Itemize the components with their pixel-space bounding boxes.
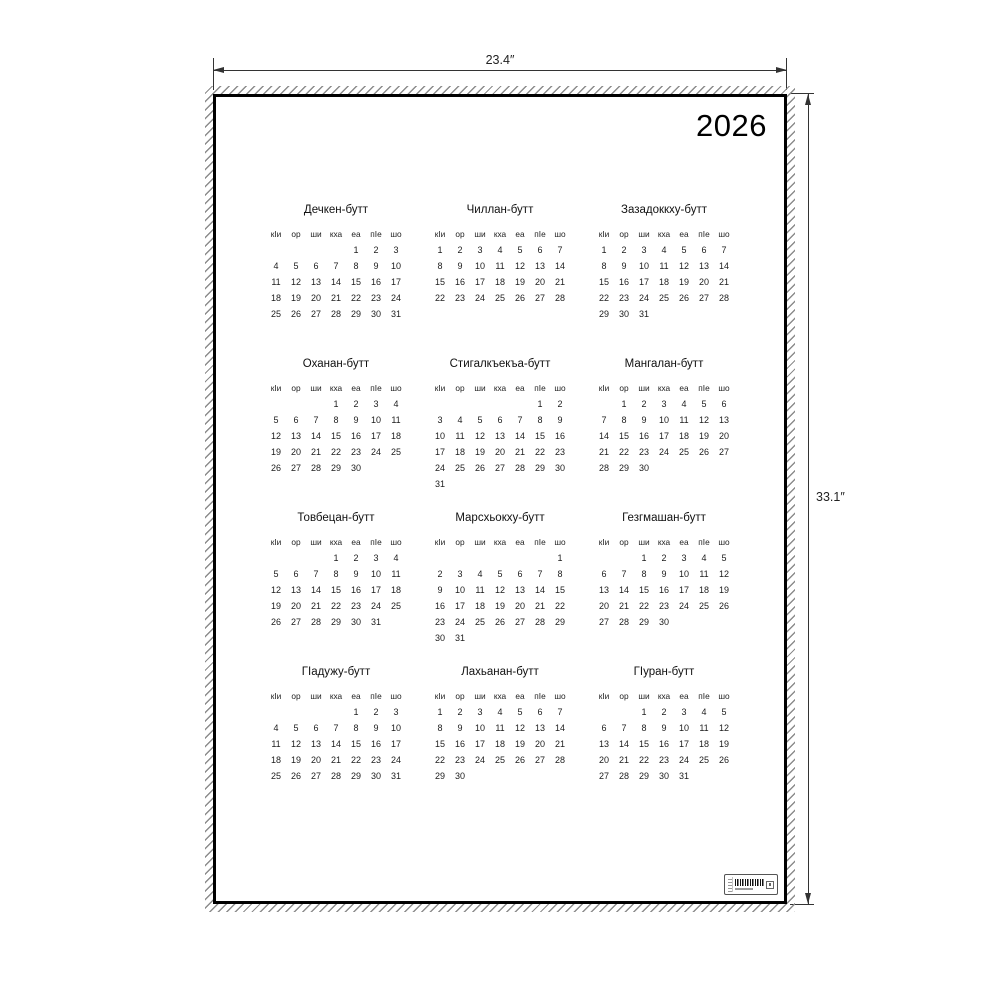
day-cell: 29 — [351, 771, 361, 781]
month-block: Зазадоккху-бутт кIиоршикхаеапIешо1234567… — [594, 203, 734, 357]
day-cell: 9 — [373, 261, 378, 271]
day-cell: 23 — [371, 293, 381, 303]
barcode-microtext — [735, 888, 753, 890]
day-cell: 23 — [659, 755, 669, 765]
day-cell: 30 — [555, 463, 565, 473]
weekday-header: еа — [515, 229, 524, 239]
day-cell: 16 — [351, 585, 361, 595]
day-cell: 21 — [555, 277, 565, 287]
month-title: Оханан-бутт — [266, 357, 406, 371]
weekday-header: еа — [351, 537, 360, 547]
height-dimension-line — [808, 94, 809, 904]
day-cell: 19 — [271, 601, 281, 611]
weekday-header: пIе — [698, 537, 709, 547]
weekday-header: ор — [455, 383, 464, 393]
day-cell: 9 — [457, 261, 462, 271]
day-cell: 23 — [351, 447, 361, 457]
day-cell: 9 — [353, 569, 358, 579]
day-cell: 19 — [515, 739, 525, 749]
day-cell: 16 — [455, 739, 465, 749]
day-cell: 4 — [273, 723, 278, 733]
day-cell: 12 — [515, 261, 525, 271]
day-cell: 9 — [457, 723, 462, 733]
weekday-header: шо — [390, 383, 401, 393]
day-cell: 22 — [535, 447, 545, 457]
day-cell: 29 — [619, 463, 629, 473]
day-cell: 11 — [455, 431, 464, 441]
day-cell: 9 — [661, 569, 666, 579]
weekday-header: ор — [619, 383, 628, 393]
day-cell: 17 — [391, 277, 401, 287]
day-cell: 28 — [599, 463, 609, 473]
day-cell: 9 — [621, 261, 626, 271]
weekday-header: ши — [638, 691, 649, 701]
weekday-header: ши — [474, 229, 485, 239]
month-grid: кIиоршикхаеапIешо12345678910111213141516… — [266, 226, 406, 322]
day-cell: 5 — [293, 723, 298, 733]
day-cell: 5 — [517, 707, 522, 717]
day-cell: 5 — [721, 707, 726, 717]
day-cell: 30 — [455, 771, 465, 781]
day-cell: 27 — [599, 771, 609, 781]
day-cell: 4 — [681, 399, 686, 409]
day-cell: 16 — [371, 277, 381, 287]
day-cell: 18 — [699, 739, 709, 749]
day-cell: 20 — [699, 277, 709, 287]
day-cell: 14 — [331, 739, 341, 749]
day-cell: 21 — [331, 755, 341, 765]
month-title: Стигалкъекъа-бутт — [430, 357, 570, 371]
barcode-icon — [735, 879, 764, 886]
day-cell: 7 — [601, 415, 606, 425]
day-cell: 6 — [517, 569, 522, 579]
day-cell: 4 — [457, 415, 462, 425]
day-cell: 11 — [699, 723, 708, 733]
weekday-header: кха — [330, 229, 342, 239]
day-cell: 26 — [679, 293, 689, 303]
month-block: ГIадужу-бутт кIиоршикхаеапIешо1234567891… — [266, 665, 406, 819]
weekday-header: кIи — [435, 383, 446, 393]
weekday-header: пIе — [534, 229, 545, 239]
day-cell: 18 — [495, 739, 505, 749]
day-cell: 21 — [619, 601, 629, 611]
weekday-header: ор — [619, 537, 628, 547]
day-cell: 26 — [515, 293, 525, 303]
day-cell: 25 — [391, 601, 401, 611]
day-cell: 13 — [291, 431, 301, 441]
weekday-header: еа — [351, 229, 360, 239]
day-cell: 4 — [393, 399, 398, 409]
weekday-header: кIи — [435, 537, 446, 547]
weekday-header: кха — [494, 537, 506, 547]
day-cell: 27 — [311, 309, 321, 319]
day-cell: 29 — [331, 617, 341, 627]
weekday-header: шо — [554, 229, 565, 239]
day-cell: 6 — [701, 245, 706, 255]
day-cell: 12 — [719, 723, 729, 733]
weekday-header: пIе — [370, 229, 381, 239]
day-cell: 10 — [679, 569, 689, 579]
day-cell: 17 — [475, 277, 485, 287]
month-block: Дечкен-бутт кIиоршикхаеапIешо12345678910… — [266, 203, 406, 357]
day-cell: 24 — [455, 617, 465, 627]
day-cell: 22 — [555, 601, 565, 611]
weekday-header: кха — [330, 383, 342, 393]
day-cell: 30 — [435, 633, 445, 643]
barcode-side-microtext — [728, 877, 733, 892]
weekday-header: ор — [291, 383, 300, 393]
day-cell: 25 — [679, 447, 689, 457]
day-cell: 8 — [537, 415, 542, 425]
weekday-header: кIи — [599, 537, 610, 547]
day-cell: 6 — [601, 569, 606, 579]
day-cell: 23 — [351, 601, 361, 611]
day-cell: 31 — [679, 771, 689, 781]
weekday-header: кIи — [599, 229, 610, 239]
day-cell: 27 — [291, 463, 301, 473]
day-cell: 26 — [475, 463, 485, 473]
weekday-header: ор — [291, 691, 300, 701]
weekday-header: пIе — [370, 383, 381, 393]
day-cell: 18 — [455, 447, 465, 457]
day-cell: 15 — [435, 739, 445, 749]
day-cell: 16 — [455, 277, 465, 287]
day-cell: 7 — [333, 261, 338, 271]
day-cell: 7 — [333, 723, 338, 733]
day-cell: 3 — [373, 553, 378, 563]
day-cell: 18 — [271, 293, 281, 303]
month-title: Мангалан-бутт — [594, 357, 734, 371]
day-cell: 20 — [719, 431, 729, 441]
height-dimension-label: 33.1″ — [816, 490, 845, 504]
day-cell: 30 — [371, 771, 381, 781]
day-cell: 9 — [641, 415, 646, 425]
day-cell: 11 — [699, 569, 708, 579]
day-cell: 29 — [639, 771, 649, 781]
weekday-header: кIи — [435, 229, 446, 239]
day-cell: 23 — [555, 447, 565, 457]
day-cell: 16 — [659, 585, 669, 595]
day-cell: 9 — [373, 723, 378, 733]
weekday-header: кха — [330, 691, 342, 701]
day-cell: 4 — [497, 245, 502, 255]
day-cell: 11 — [391, 569, 400, 579]
day-cell: 19 — [719, 585, 729, 595]
day-cell: 3 — [393, 707, 398, 717]
day-cell: 15 — [639, 585, 649, 595]
day-cell: 25 — [495, 755, 505, 765]
day-cell: 23 — [435, 617, 445, 627]
day-cell: 3 — [641, 245, 646, 255]
day-cell: 17 — [391, 739, 401, 749]
day-cell: 15 — [619, 431, 629, 441]
day-cell: 28 — [619, 771, 629, 781]
day-cell: 28 — [331, 771, 341, 781]
day-cell: 30 — [351, 463, 361, 473]
day-cell: 26 — [515, 755, 525, 765]
day-cell: 26 — [719, 601, 729, 611]
weekday-header: кха — [330, 537, 342, 547]
weekday-header: кха — [494, 691, 506, 701]
day-cell: 8 — [333, 569, 338, 579]
day-cell: 10 — [475, 723, 485, 733]
day-cell: 1 — [557, 553, 562, 563]
weekday-header: еа — [679, 229, 688, 239]
day-cell: 28 — [555, 293, 565, 303]
day-cell: 21 — [719, 277, 729, 287]
weekday-header: еа — [679, 383, 688, 393]
weekday-header: шо — [390, 537, 401, 547]
day-cell: 31 — [455, 633, 465, 643]
weekday-header: ши — [638, 383, 649, 393]
day-cell: 9 — [557, 415, 562, 425]
day-cell: 28 — [719, 293, 729, 303]
day-cell: 18 — [679, 431, 689, 441]
day-cell: 21 — [619, 755, 629, 765]
day-cell: 24 — [391, 755, 401, 765]
day-cell: 5 — [273, 569, 278, 579]
day-cell: 7 — [517, 415, 522, 425]
day-cell: 23 — [455, 755, 465, 765]
month-title: Дечкен-бутт — [266, 203, 406, 217]
mockup-canvas: 23.4″ 33.1″ 2026 Дечкен-бутт кIиоршикхае… — [0, 0, 1000, 1000]
day-cell: 27 — [291, 617, 301, 627]
day-cell: 7 — [621, 569, 626, 579]
weekday-header: еа — [515, 691, 524, 701]
weekday-header: шо — [554, 383, 565, 393]
day-cell: 7 — [621, 723, 626, 733]
weekday-header: ор — [455, 691, 464, 701]
day-cell: 1 — [621, 399, 626, 409]
day-cell: 5 — [497, 569, 502, 579]
day-cell: 15 — [639, 739, 649, 749]
day-cell: 30 — [619, 309, 629, 319]
day-cell: 3 — [477, 245, 482, 255]
day-cell: 9 — [437, 585, 442, 595]
day-cell: 19 — [291, 755, 301, 765]
day-cell: 29 — [535, 463, 545, 473]
day-cell: 5 — [273, 415, 278, 425]
weekday-header: ши — [310, 229, 321, 239]
day-cell: 10 — [455, 585, 465, 595]
poster-frame: 2026 Дечкен-бутт кIиоршикхаеапIешо123456… — [213, 94, 787, 904]
weekday-header: ши — [474, 537, 485, 547]
day-cell: 6 — [601, 723, 606, 733]
day-cell: 29 — [555, 617, 565, 627]
day-cell: 7 — [313, 569, 318, 579]
width-dimension-label: 23.4″ — [460, 53, 540, 67]
day-cell: 22 — [619, 447, 629, 457]
day-cell: 10 — [391, 261, 401, 271]
day-cell: 24 — [679, 601, 689, 611]
weekday-header: шо — [718, 383, 729, 393]
day-cell: 20 — [311, 293, 321, 303]
day-cell: 26 — [291, 309, 301, 319]
weekday-header: кха — [658, 229, 670, 239]
day-cell: 12 — [515, 723, 525, 733]
month-grid: кIиоршикхаеапIешо12345678910111213141516… — [266, 534, 406, 630]
weekday-header: шо — [390, 229, 401, 239]
day-cell: 2 — [437, 569, 442, 579]
day-cell: 24 — [371, 447, 381, 457]
day-cell: 19 — [271, 447, 281, 457]
day-cell: 11 — [495, 261, 504, 271]
weekday-header: пIе — [698, 229, 709, 239]
day-cell: 10 — [435, 431, 445, 441]
day-cell: 25 — [699, 755, 709, 765]
day-cell: 14 — [619, 585, 629, 595]
day-cell: 6 — [721, 399, 726, 409]
weekday-header: еа — [515, 383, 524, 393]
barcode-corner-box — [766, 881, 774, 889]
day-cell: 18 — [391, 431, 401, 441]
weekday-header: кIи — [271, 229, 282, 239]
day-cell: 4 — [661, 245, 666, 255]
weekday-header: ши — [474, 691, 485, 701]
weekday-header: кха — [658, 537, 670, 547]
day-cell: 14 — [555, 723, 565, 733]
day-cell: 2 — [353, 399, 358, 409]
day-cell: 15 — [535, 431, 545, 441]
day-cell: 31 — [639, 309, 649, 319]
day-cell: 7 — [313, 415, 318, 425]
day-cell: 17 — [639, 277, 649, 287]
day-cell: 2 — [353, 553, 358, 563]
day-cell: 28 — [535, 617, 545, 627]
day-cell: 29 — [639, 617, 649, 627]
day-cell: 17 — [679, 585, 689, 595]
day-cell: 14 — [619, 739, 629, 749]
day-cell: 8 — [641, 723, 646, 733]
day-cell: 23 — [659, 601, 669, 611]
day-cell: 28 — [331, 309, 341, 319]
barcode-corner-mark — [769, 883, 771, 886]
day-cell: 6 — [537, 245, 542, 255]
day-cell: 9 — [661, 723, 666, 733]
day-cell: 15 — [599, 277, 609, 287]
day-cell: 1 — [437, 245, 442, 255]
day-cell: 8 — [353, 723, 358, 733]
weekday-header: ши — [638, 229, 649, 239]
day-cell: 2 — [373, 245, 378, 255]
day-cell: 25 — [659, 293, 669, 303]
day-cell: 13 — [699, 261, 709, 271]
weekday-header: шо — [554, 691, 565, 701]
month-grid: кIиоршикхаеапIешо12345678910111213141516… — [430, 380, 570, 492]
day-cell: 4 — [701, 553, 706, 563]
day-cell: 8 — [333, 415, 338, 425]
day-cell: 17 — [371, 585, 381, 595]
day-cell: 14 — [311, 431, 321, 441]
day-cell: 6 — [313, 723, 318, 733]
day-cell: 16 — [555, 431, 565, 441]
day-cell: 6 — [537, 707, 542, 717]
width-dimension-line — [213, 70, 787, 71]
month-title: Марсхьокху-бутт — [430, 511, 570, 525]
day-cell: 26 — [291, 771, 301, 781]
month-grid: кIиоршикхаеапIешо12345678910111213141516… — [266, 380, 406, 476]
day-cell: 29 — [435, 771, 445, 781]
month-grid: кIиоршикхаеапIешо12345678910111213141516… — [430, 226, 570, 306]
day-cell: 18 — [699, 585, 709, 595]
weekday-header: шо — [718, 229, 729, 239]
weekday-header: кIи — [271, 383, 282, 393]
month-block: Гезгмашан-бутт кIиоршикхаеапIешо12345678… — [594, 511, 734, 665]
day-cell: 1 — [601, 245, 606, 255]
day-cell: 12 — [679, 261, 689, 271]
day-cell: 22 — [435, 293, 445, 303]
day-cell: 28 — [619, 617, 629, 627]
day-cell: 5 — [477, 415, 482, 425]
day-cell: 31 — [435, 479, 445, 489]
weekday-header: шо — [718, 537, 729, 547]
day-cell: 7 — [557, 245, 562, 255]
day-cell: 5 — [517, 245, 522, 255]
day-cell: 20 — [599, 755, 609, 765]
day-cell: 8 — [353, 261, 358, 271]
day-cell: 12 — [271, 585, 281, 595]
day-cell: 24 — [475, 755, 485, 765]
day-cell: 19 — [291, 293, 301, 303]
day-cell: 27 — [535, 293, 545, 303]
day-cell: 20 — [515, 601, 525, 611]
weekday-header: шо — [554, 537, 565, 547]
month-block: ГIуран-бутт кIиоршикхаеапIешо12345678910… — [594, 665, 734, 819]
poster-bleed-hatch-border: 2026 Дечкен-бутт кIиоршикхаеапIешо123456… — [205, 86, 795, 912]
day-cell: 13 — [311, 277, 321, 287]
day-cell: 25 — [699, 601, 709, 611]
day-cell: 15 — [331, 431, 341, 441]
day-cell: 1 — [641, 553, 646, 563]
day-cell: 11 — [391, 415, 400, 425]
day-cell: 7 — [537, 569, 542, 579]
day-cell: 3 — [681, 553, 686, 563]
day-cell: 27 — [495, 463, 505, 473]
weekday-header: ор — [291, 229, 300, 239]
day-cell: 1 — [641, 707, 646, 717]
day-cell: 23 — [619, 293, 629, 303]
weekday-header: кха — [658, 691, 670, 701]
month-title: Чиллан-бутт — [430, 203, 570, 217]
day-cell: 6 — [497, 415, 502, 425]
month-block: Чиллан-бутт кIиоршикхаеапIешо12345678910… — [430, 203, 570, 357]
month-block: Мангалан-бутт кIиоршикхаеапIешо123456789… — [594, 357, 734, 511]
day-cell: 5 — [293, 261, 298, 271]
day-cell: 27 — [535, 755, 545, 765]
width-arrow-left-icon — [213, 67, 224, 73]
day-cell: 3 — [477, 707, 482, 717]
day-cell: 25 — [475, 617, 485, 627]
day-cell: 23 — [371, 755, 381, 765]
day-cell: 26 — [271, 617, 281, 627]
day-cell: 16 — [351, 431, 361, 441]
day-cell: 8 — [437, 261, 442, 271]
day-cell: 22 — [331, 601, 341, 611]
day-cell: 27 — [599, 617, 609, 627]
day-cell: 14 — [719, 261, 729, 271]
month-block: Марсхьокху-бутт кIиоршикхаеапIешо1234567… — [430, 511, 570, 665]
day-cell: 14 — [599, 431, 609, 441]
day-cell: 23 — [639, 447, 649, 457]
weekday-header: кIи — [599, 691, 610, 701]
month-grid: кIиоршикхаеапIешо12345678910111213141516… — [594, 226, 734, 322]
day-cell: 6 — [313, 261, 318, 271]
day-cell: 18 — [391, 585, 401, 595]
day-cell: 15 — [351, 277, 361, 287]
day-cell: 21 — [515, 447, 525, 457]
weekday-header: пIе — [698, 691, 709, 701]
day-cell: 16 — [435, 601, 445, 611]
